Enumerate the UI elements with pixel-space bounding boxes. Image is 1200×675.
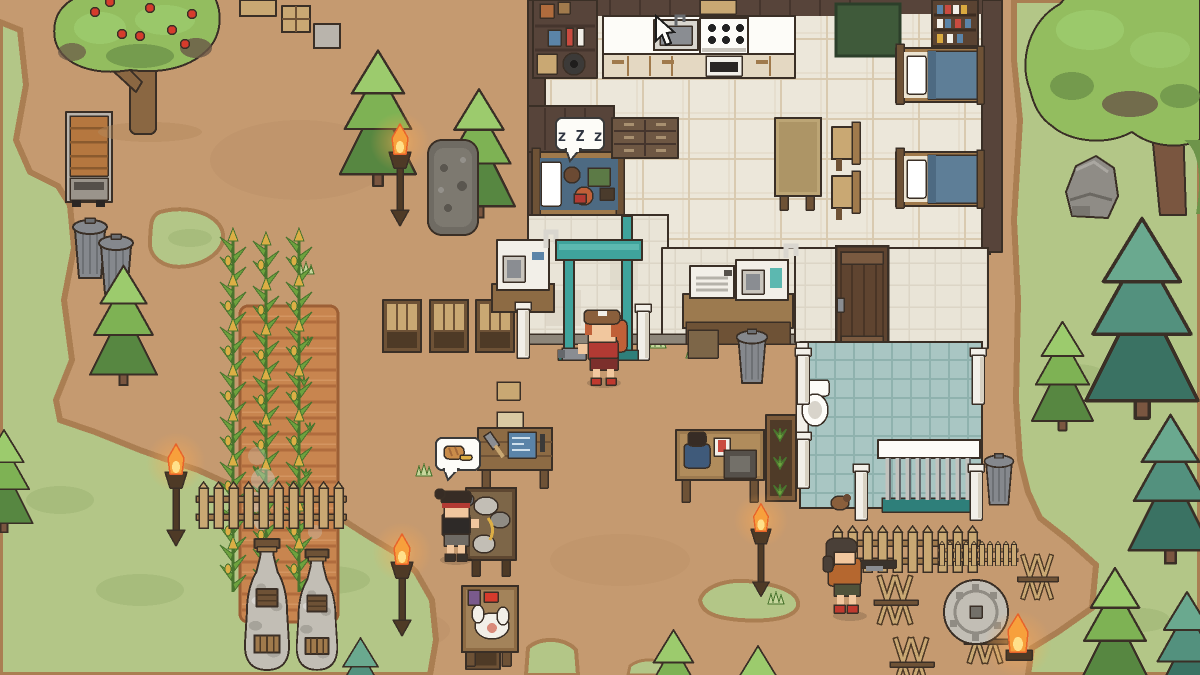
meat	[484, 592, 498, 602]
stone-slab[interactable]	[428, 140, 478, 235]
tool	[540, 434, 545, 452]
bookshelf[interactable]	[932, 0, 978, 46]
stove[interactable]	[700, 18, 748, 76]
door-handle[interactable]	[837, 298, 844, 312]
game-scene: z Z z	[0, 0, 1200, 675]
occupied-bed[interactable]	[532, 148, 624, 216]
campfire[interactable]	[984, 610, 1052, 675]
small-crate	[497, 382, 520, 400]
ruined-pillar	[970, 348, 986, 404]
ruined-pillar	[853, 464, 869, 520]
hair-bun	[435, 489, 445, 499]
ruined-pillar	[795, 432, 811, 488]
shelf-crate	[537, 54, 557, 74]
wooden-bench[interactable]	[383, 300, 421, 352]
bathroom	[795, 342, 986, 520]
wall-boxes	[700, 0, 736, 14]
sleep-text: z Z z	[557, 127, 602, 145]
ruined-pillar	[795, 348, 811, 404]
garbage-can[interactable]	[737, 329, 768, 383]
single-bed[interactable]	[896, 148, 984, 208]
garbage-can[interactable]	[985, 454, 1014, 505]
blanket-item	[588, 168, 610, 186]
survivor-tinkering[interactable]	[684, 432, 710, 468]
sleeping-survivor[interactable]	[564, 167, 580, 183]
wall-section-door	[795, 248, 988, 352]
wooden-bench[interactable]	[430, 300, 468, 352]
shelf-box	[548, 30, 561, 46]
shelf-bottle	[566, 28, 573, 46]
planter-box[interactable]	[766, 415, 796, 501]
house-wall-right	[982, 0, 1002, 252]
ruined-pillar	[515, 302, 531, 358]
supply-crate[interactable]	[314, 24, 340, 48]
supply-crate[interactable]	[240, 0, 276, 16]
pillow	[541, 162, 561, 206]
shelf-box	[540, 4, 554, 18]
dresser[interactable]	[612, 118, 678, 158]
ruined-pillar	[968, 464, 984, 520]
delivery-truck[interactable]	[66, 112, 112, 207]
junk-crate	[688, 330, 718, 358]
counter-cabinets	[603, 54, 795, 78]
game-viewport: z Z z	[0, 0, 1200, 675]
box	[468, 590, 480, 605]
green-rug	[836, 4, 900, 56]
grass-patch	[526, 640, 578, 675]
shelf-bottle	[577, 28, 584, 46]
single-bed[interactable]	[896, 44, 984, 104]
shelf-box	[558, 2, 570, 14]
dirt-stain	[550, 534, 690, 586]
headband	[442, 503, 470, 508]
